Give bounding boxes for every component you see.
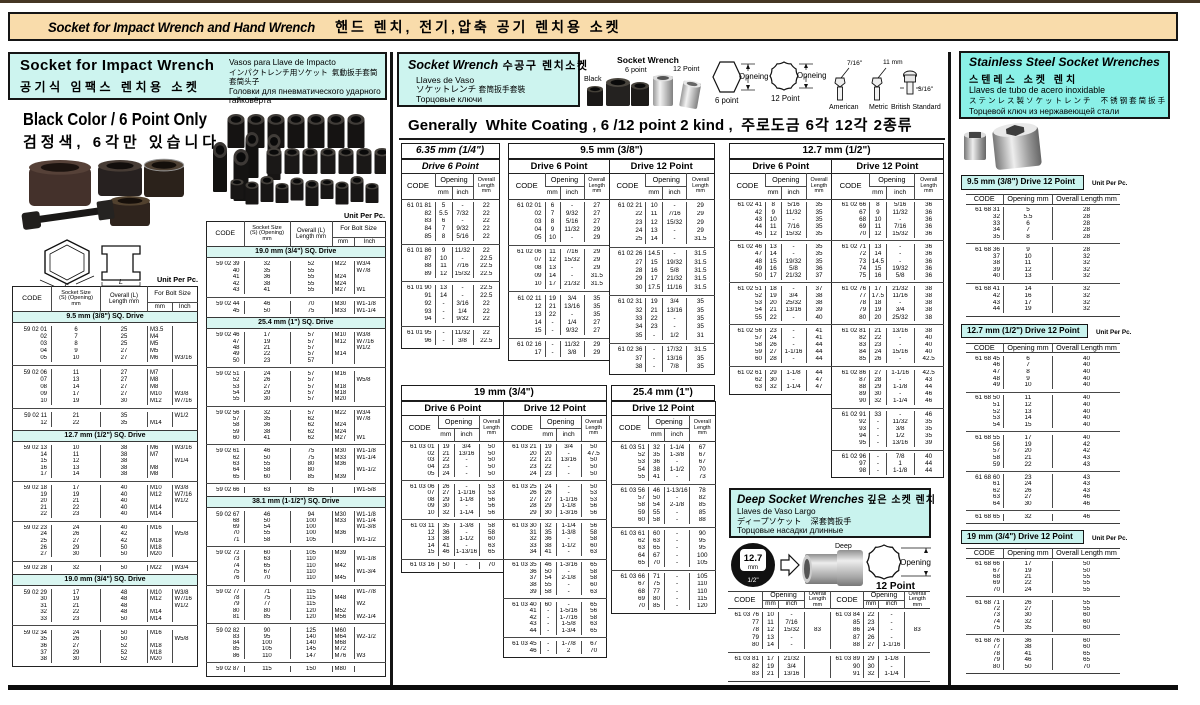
svg-text:6 point: 6 point (715, 96, 739, 105)
svg-text:3/16": 3/16" (918, 86, 934, 93)
svg-text:12 Point: 12 Point (876, 581, 916, 590)
svg-text:11 mm: 11 mm (883, 59, 903, 66)
svg-text:1/2": 1/2" (747, 577, 759, 584)
svg-text:7/16": 7/16" (847, 60, 863, 67)
svg-text:Deep: Deep (835, 543, 852, 550)
svg-text:12.7: 12.7 (744, 553, 763, 564)
svg-text:Metric: Metric (869, 104, 889, 110)
svg-text:Socket Wrench: Socket Wrench (617, 55, 679, 65)
svg-text:Opening: Opening (900, 558, 931, 567)
svg-text:Black: Black (584, 74, 602, 83)
svg-text:mm: mm (748, 565, 758, 571)
svg-text:6 point: 6 point (625, 65, 647, 74)
svg-text:Opneing: Opneing (797, 71, 826, 80)
svg-text:Opneing: Opneing (739, 72, 768, 81)
svg-text:British Standard: British Standard (891, 104, 941, 110)
svg-text:American: American (829, 104, 859, 110)
svg-text:12 Point: 12 Point (771, 94, 800, 103)
svg-text:12 Point: 12 Point (673, 64, 699, 73)
